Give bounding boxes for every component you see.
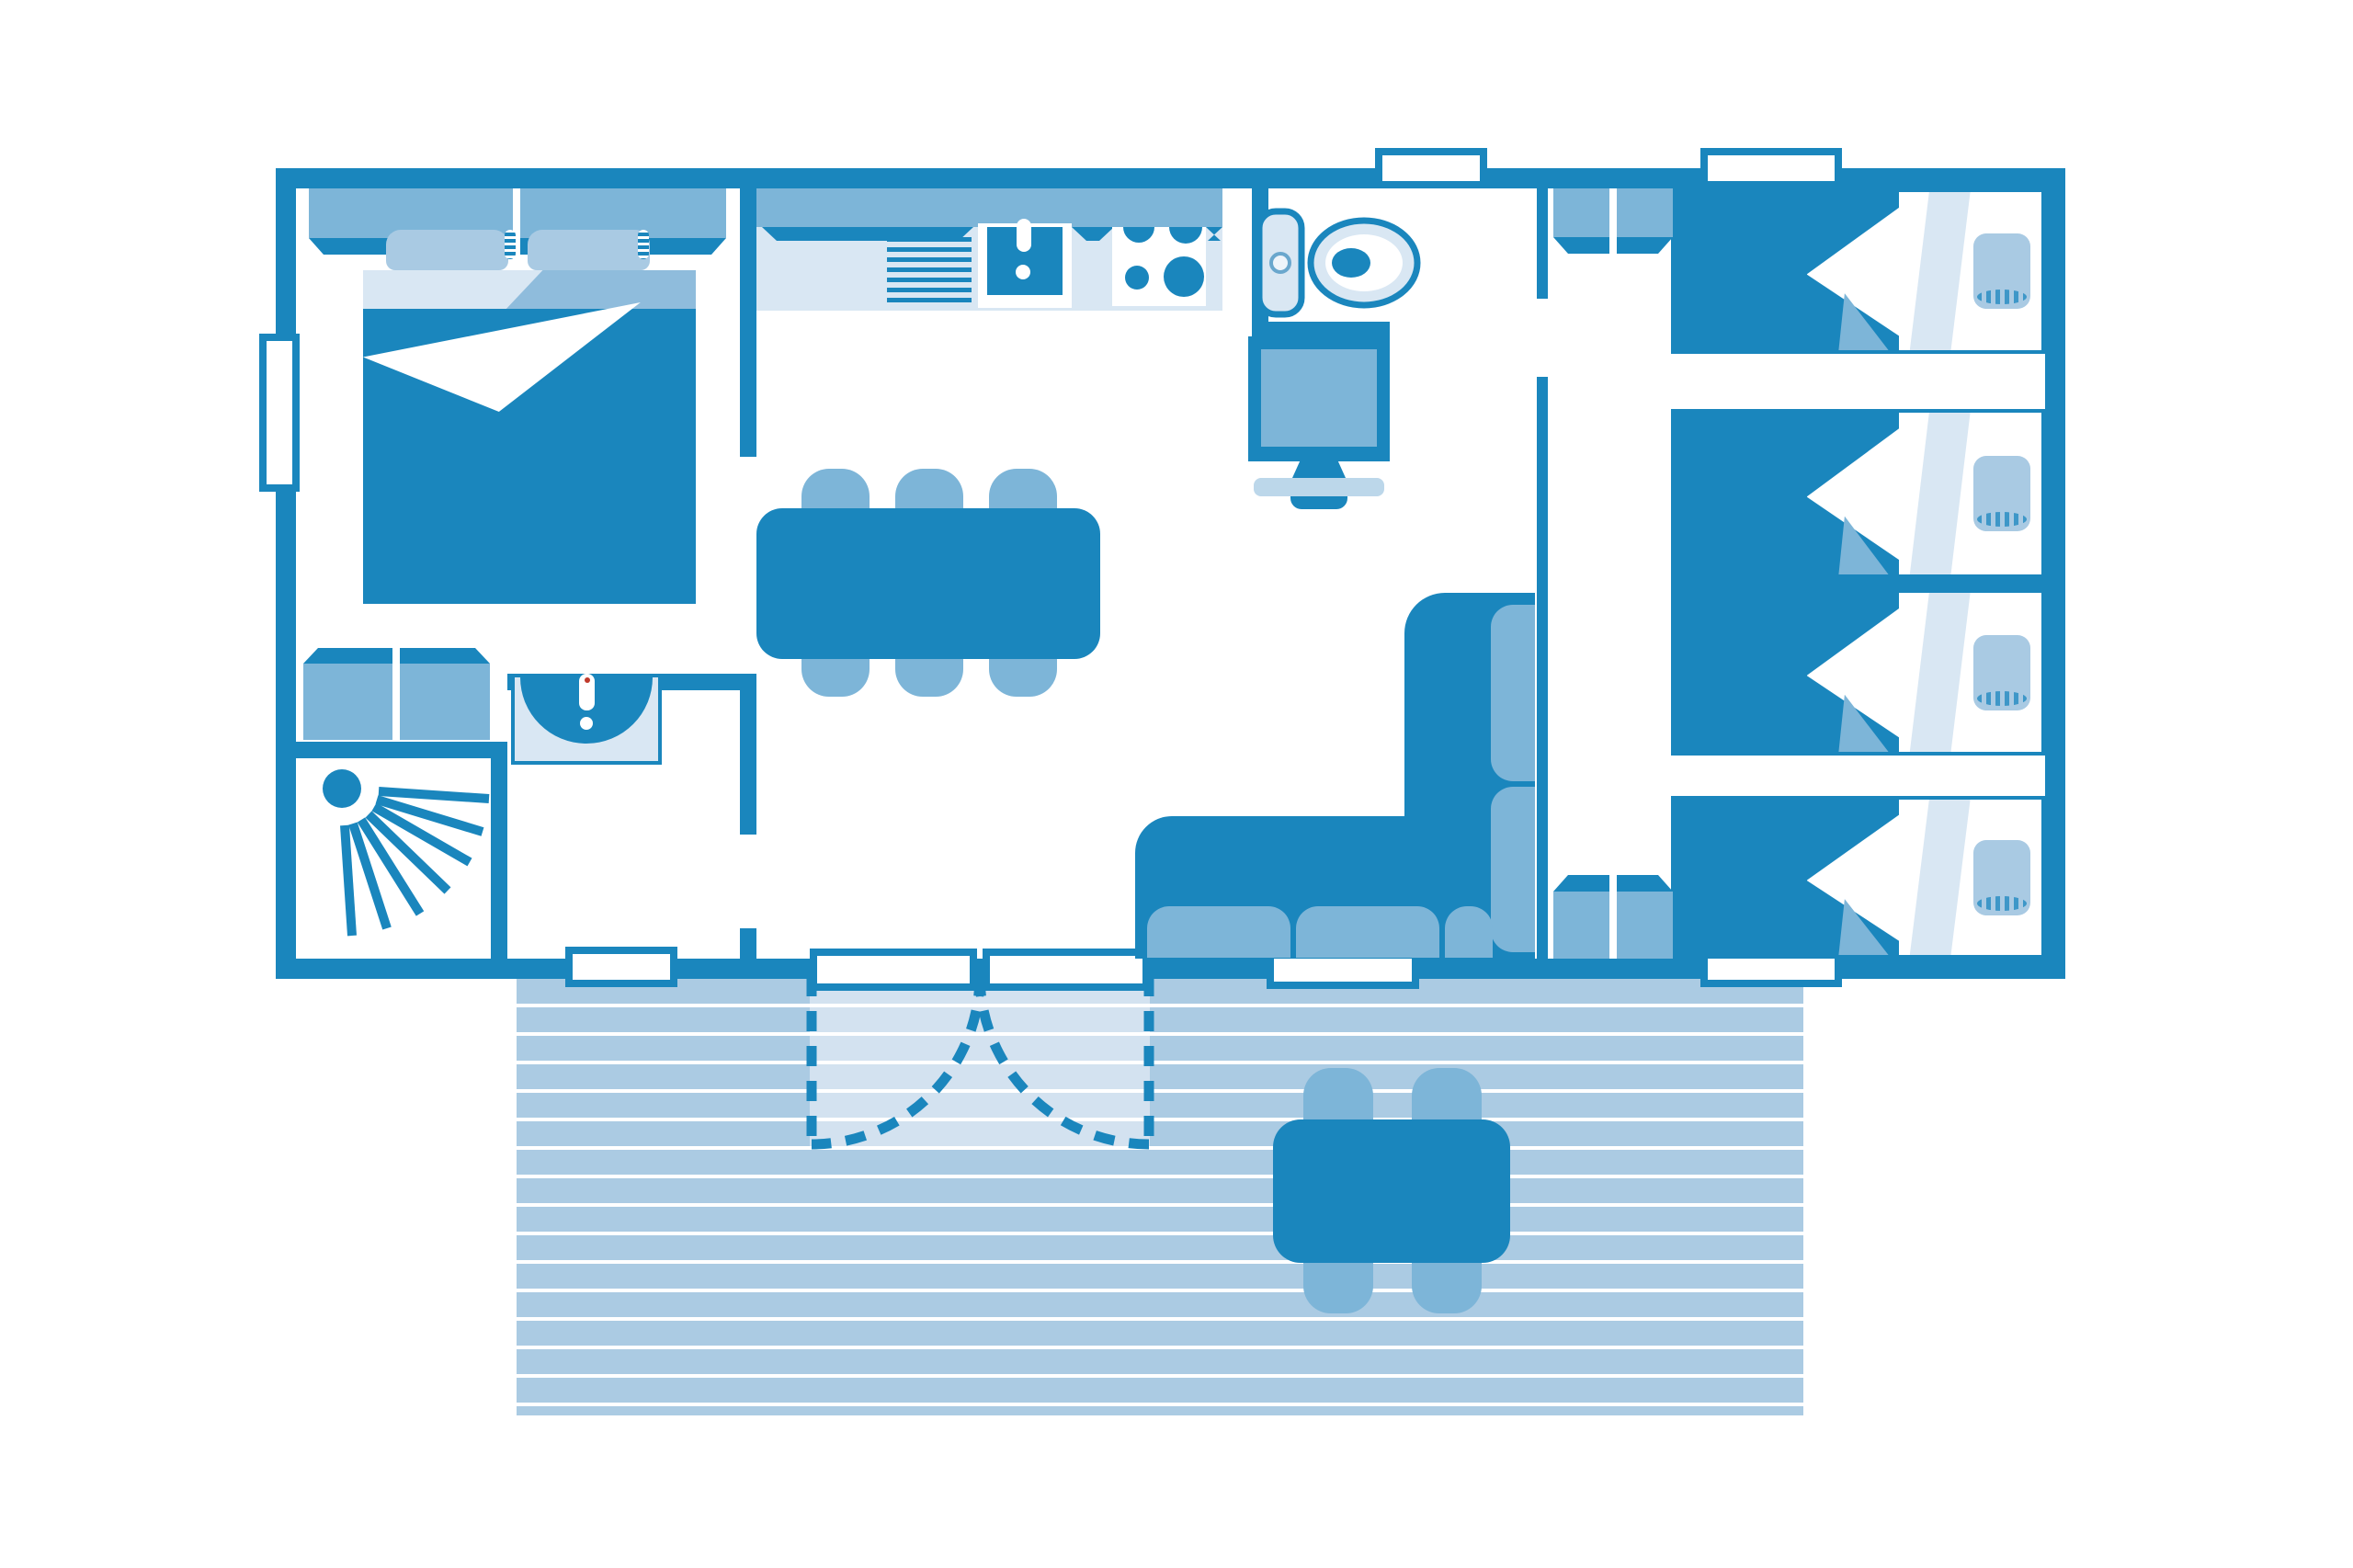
sofa-back-cushion xyxy=(1445,906,1493,958)
pillow xyxy=(1973,840,2030,915)
pillow-tie-icon xyxy=(1977,896,2027,911)
wall-hallway-left-upper xyxy=(1537,188,1548,299)
wall-hallway-left-lower xyxy=(1537,377,1548,959)
wardrobe-bathroom-split xyxy=(392,648,400,740)
dining-table xyxy=(756,508,1100,659)
shower-spray-icon xyxy=(303,735,533,965)
window-top-wc xyxy=(1375,148,1487,188)
pillow-tie-icon xyxy=(1977,691,2027,706)
wall-bathroom-right-stub xyxy=(740,928,756,959)
double-bed xyxy=(363,223,696,604)
window-left-bedroom xyxy=(259,334,300,492)
tv-screen xyxy=(1261,349,1377,447)
sofa-back-cushion xyxy=(1296,906,1439,958)
pillow-tie-icon xyxy=(1977,290,2027,304)
sofa-back-cushion xyxy=(1491,787,1535,952)
sink-drainer-icon xyxy=(887,237,972,305)
sink-drain-icon xyxy=(1016,265,1030,279)
toilet-icon xyxy=(1256,195,1467,331)
kitchen-upper-cabinets xyxy=(756,188,1222,227)
sofa-back-cushion xyxy=(1147,906,1290,958)
outdoor-table xyxy=(1273,1119,1510,1263)
door-bathroom-terrace xyxy=(565,947,677,987)
floorplan-stage xyxy=(0,0,2353,1568)
pillow xyxy=(1973,233,2030,309)
wall-bathroom-right xyxy=(740,690,756,835)
tv-base xyxy=(1254,478,1384,496)
single-bed-2 xyxy=(1682,409,2045,578)
hob-burner-icon xyxy=(1125,266,1149,290)
pillow xyxy=(1973,456,2030,531)
window-top-bedroom xyxy=(1700,148,1842,188)
wardrobe-hall-top-split xyxy=(1609,188,1617,254)
french-door-left-panel xyxy=(810,949,977,991)
single-bed-3 xyxy=(1682,589,2045,756)
wall-bedrooms-divider xyxy=(1671,578,2045,589)
tv-neck xyxy=(1292,461,1346,478)
french-door-right-panel xyxy=(983,949,1150,991)
sofa-back-cushion xyxy=(1491,605,1535,781)
pillow-tie-icon xyxy=(505,230,516,259)
washbasin-faucet-dot xyxy=(585,677,590,683)
pillow-tie-icon xyxy=(1977,512,2027,527)
door-swing-icon xyxy=(800,965,1167,1167)
hob-burner-icon xyxy=(1164,256,1204,297)
wall-left xyxy=(276,188,296,959)
pillow xyxy=(1973,635,2030,710)
tv-foot xyxy=(1290,496,1347,509)
pillow xyxy=(528,230,650,270)
wall-right xyxy=(2045,188,2065,959)
wardrobe-hall-bottom-split xyxy=(1609,875,1617,959)
washbasin-drain-icon xyxy=(580,717,593,730)
pillow-tie-icon xyxy=(638,230,649,259)
single-bed-4 xyxy=(1682,796,2045,959)
sink-faucet-icon xyxy=(1017,219,1031,252)
single-bed-1 xyxy=(1682,188,2045,354)
pillow xyxy=(386,230,508,270)
wall-masterbedroom-partition xyxy=(740,188,756,457)
